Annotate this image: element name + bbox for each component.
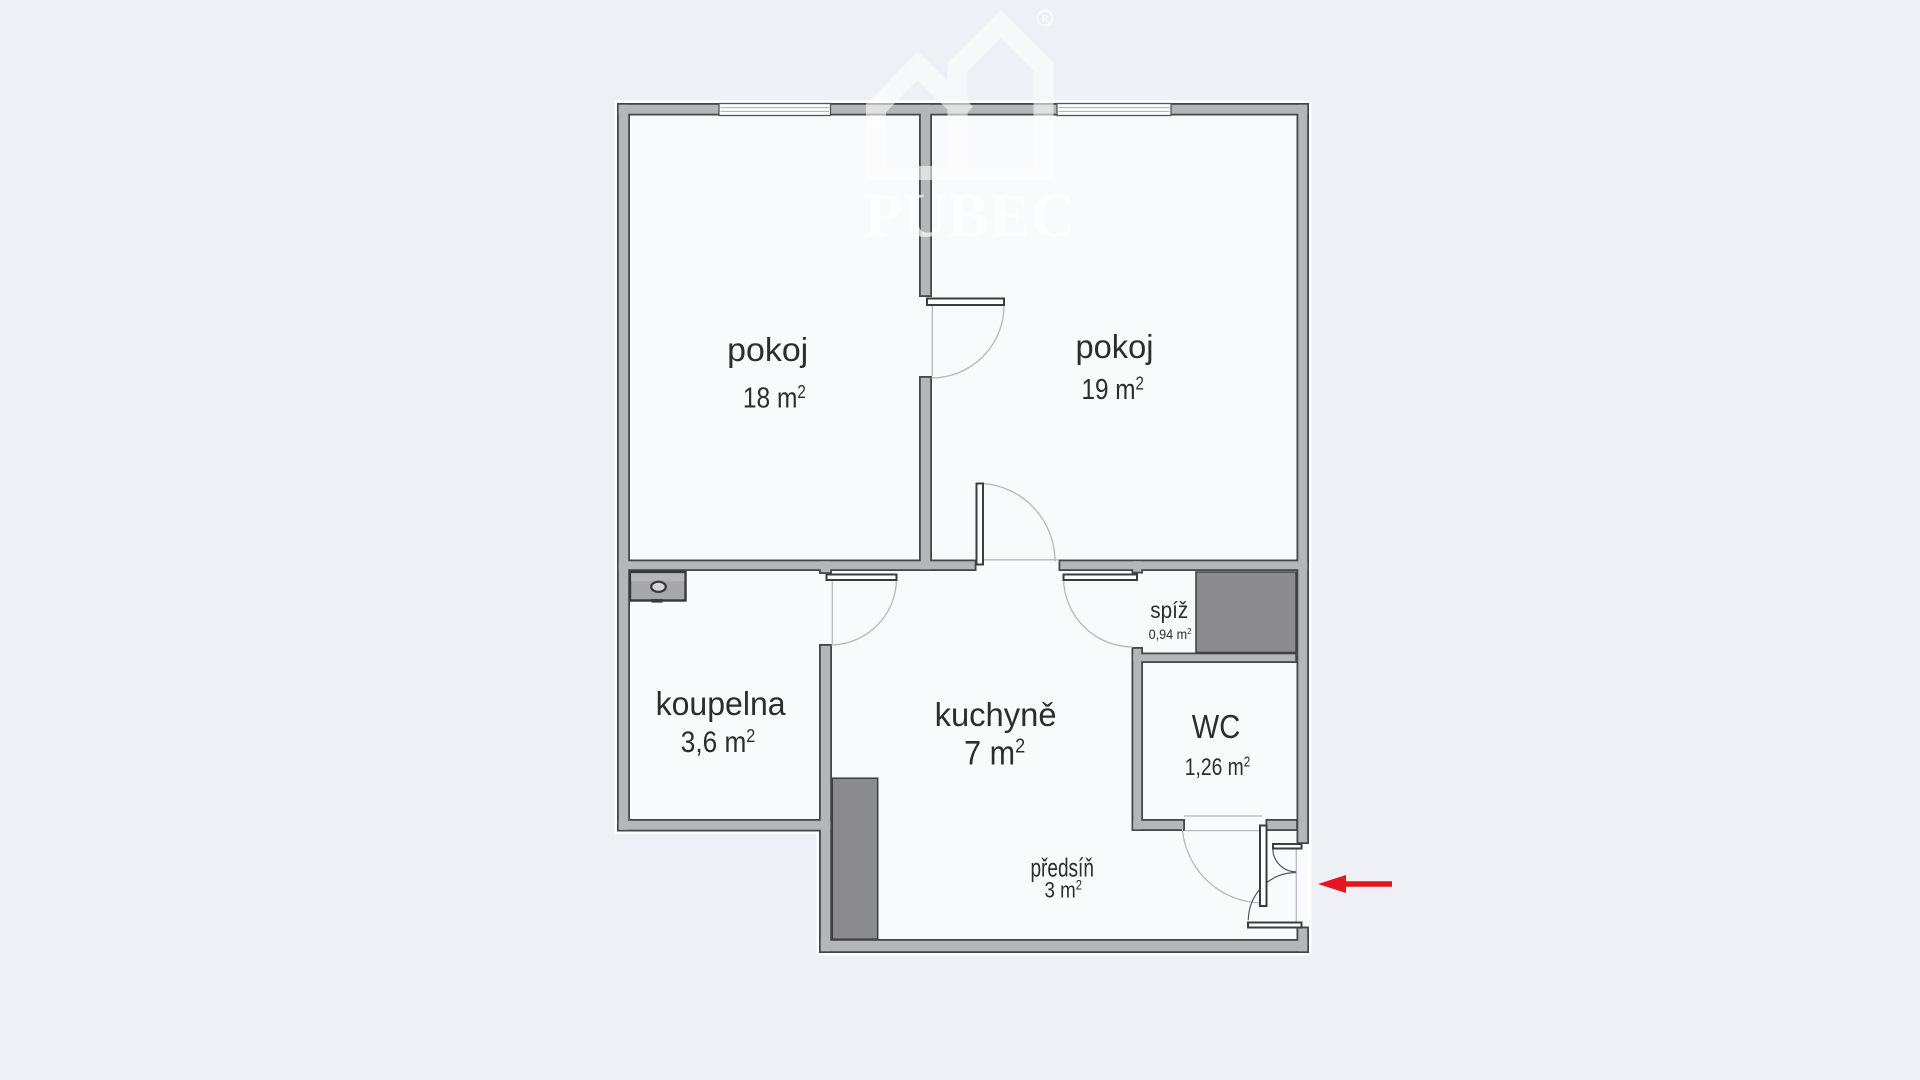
svg-text:WC: WC [1192, 708, 1241, 745]
svg-text:pokoj: pokoj [727, 331, 808, 368]
svg-text:19 m2: 19 m2 [1081, 374, 1144, 407]
svg-text:PUBEC: PUBEC [865, 180, 1076, 251]
svg-text:1,26 m2: 1,26 m2 [1185, 754, 1251, 781]
svg-text:0,94 m2: 0,94 m2 [1149, 626, 1192, 642]
svg-text:koupelna: koupelna [656, 685, 787, 722]
svg-text:pokoj: pokoj [1076, 328, 1154, 365]
svg-text:spíž: spíž [1150, 597, 1188, 623]
svg-text:kuchyně: kuchyně [935, 696, 1057, 733]
svg-text:R: R [1041, 13, 1050, 25]
svg-text:18 m2: 18 m2 [743, 382, 806, 415]
svg-text:3,6 m2: 3,6 m2 [681, 725, 755, 759]
